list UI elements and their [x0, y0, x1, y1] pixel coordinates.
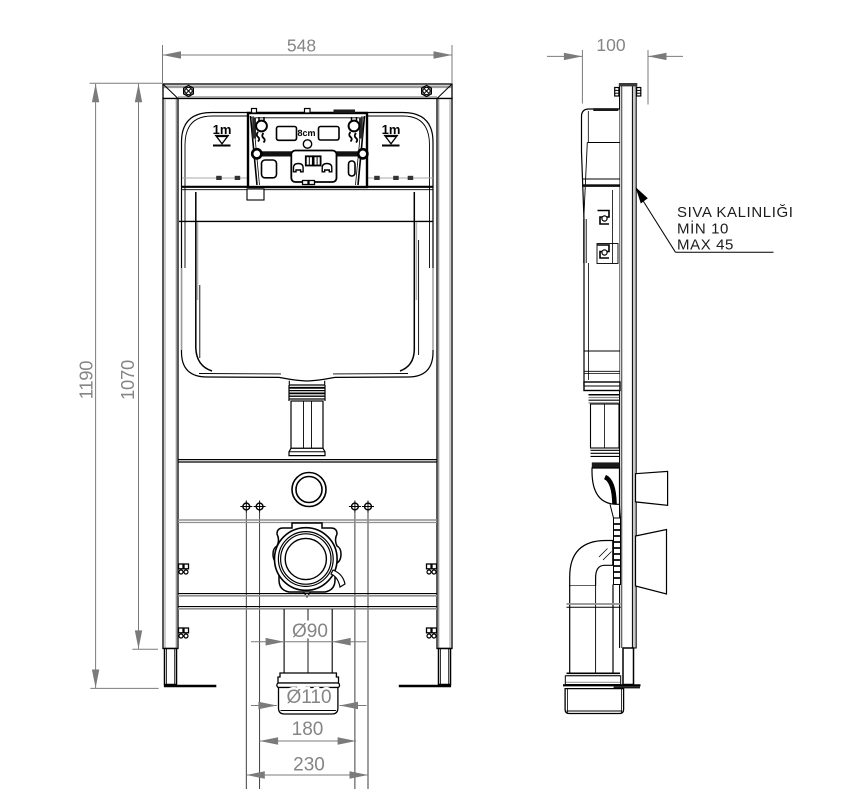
svg-text:SIVA KALINLIĞI: SIVA KALINLIĞI: [677, 204, 794, 221]
svg-text:100: 100: [596, 35, 625, 55]
svg-text:180: 180: [292, 719, 324, 740]
svg-text:230: 230: [293, 755, 325, 776]
svg-text:MAX 45: MAX 45: [677, 237, 734, 254]
svg-text:MİN 10: MİN 10: [677, 219, 729, 237]
svg-text:Ø90: Ø90: [292, 621, 328, 642]
svg-text:1m: 1m: [382, 122, 401, 137]
svg-text:548: 548: [287, 36, 316, 56]
svg-text:1070: 1070: [117, 360, 138, 400]
svg-text:1m: 1m: [213, 122, 232, 137]
svg-text:Ø110: Ø110: [286, 687, 331, 708]
svg-text:8cm: 8cm: [297, 128, 315, 138]
svg-text:1190: 1190: [76, 361, 97, 400]
